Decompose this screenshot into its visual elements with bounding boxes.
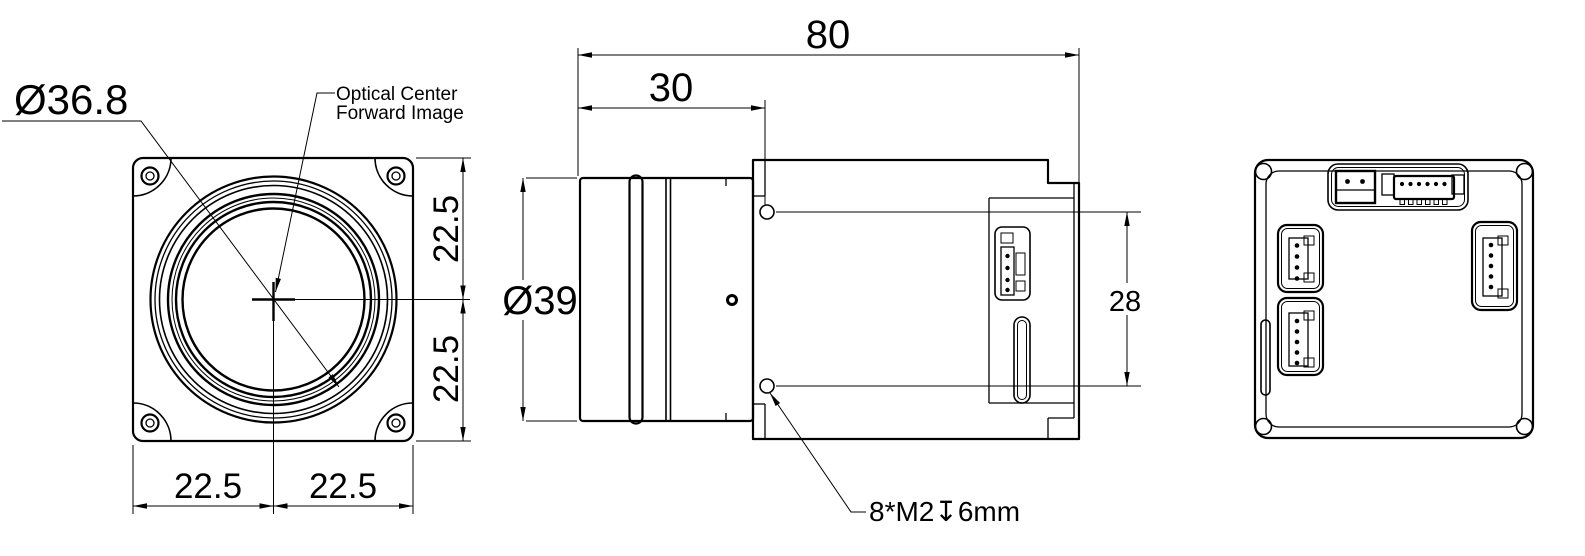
- rear-left-lower-connector: [1278, 298, 1323, 375]
- side-slot: [1014, 317, 1030, 403]
- mount-hole-top: [760, 205, 774, 219]
- rear-right-connector: [1472, 222, 1517, 310]
- thread-note-label: 8*M2↧6mm: [869, 496, 1020, 527]
- dim-hole-spacing: 28: [776, 212, 1153, 386]
- mount-hole-bottom: [760, 379, 774, 393]
- dim-lens-length-label: 30: [649, 66, 694, 110]
- thread-note-callout: 8*M2↧6mm: [770, 393, 1020, 527]
- front-view: Ø36.8 Optical Center Forward Image 22.5 …: [2, 76, 471, 514]
- dim-right-upper: 22.5: [427, 195, 466, 263]
- optical-center-label-line2: Forward Image: [336, 103, 464, 124]
- dim-lens-diameter: Ø39: [502, 178, 579, 421]
- optical-center-leader-line: [276, 93, 336, 292]
- focus-ring: [630, 176, 643, 424]
- rear-view: [1255, 160, 1533, 438]
- thread-note-leader-line: [770, 393, 866, 512]
- side-connector: [995, 227, 1030, 300]
- rear-left-upper-connector: [1278, 225, 1323, 292]
- dim-right-lower: 22.5: [427, 335, 466, 403]
- technical-drawing: Ø36.8 Optical Center Forward Image 22.5 …: [0, 0, 1585, 556]
- dim-overall-length-label: 80: [806, 13, 851, 57]
- dim-lens-diameter-label: Ø39: [502, 279, 578, 323]
- power-connector-2pin: [1336, 171, 1375, 203]
- side-view: 80 30 Ø39 28 8*M2↧6mm: [502, 13, 1153, 527]
- lens-barrel: [580, 176, 753, 424]
- dim-bottom-right: 22.5: [309, 467, 377, 506]
- dim-bottom-left: 22.5: [174, 467, 242, 506]
- dim-hole-spacing-label: 28: [1109, 286, 1141, 318]
- side-body: [753, 160, 1079, 440]
- drawing-canvas: Ø36.8 Optical Center Forward Image 22.5 …: [0, 0, 1585, 556]
- barrel-index-dot: [728, 296, 737, 305]
- optical-center-label-line1: Optical Center: [336, 84, 458, 105]
- data-connector-multipin: [1382, 174, 1464, 205]
- lens-diameter-label: Ø36.8: [14, 76, 128, 123]
- dim-lens-length: 30: [578, 66, 765, 206]
